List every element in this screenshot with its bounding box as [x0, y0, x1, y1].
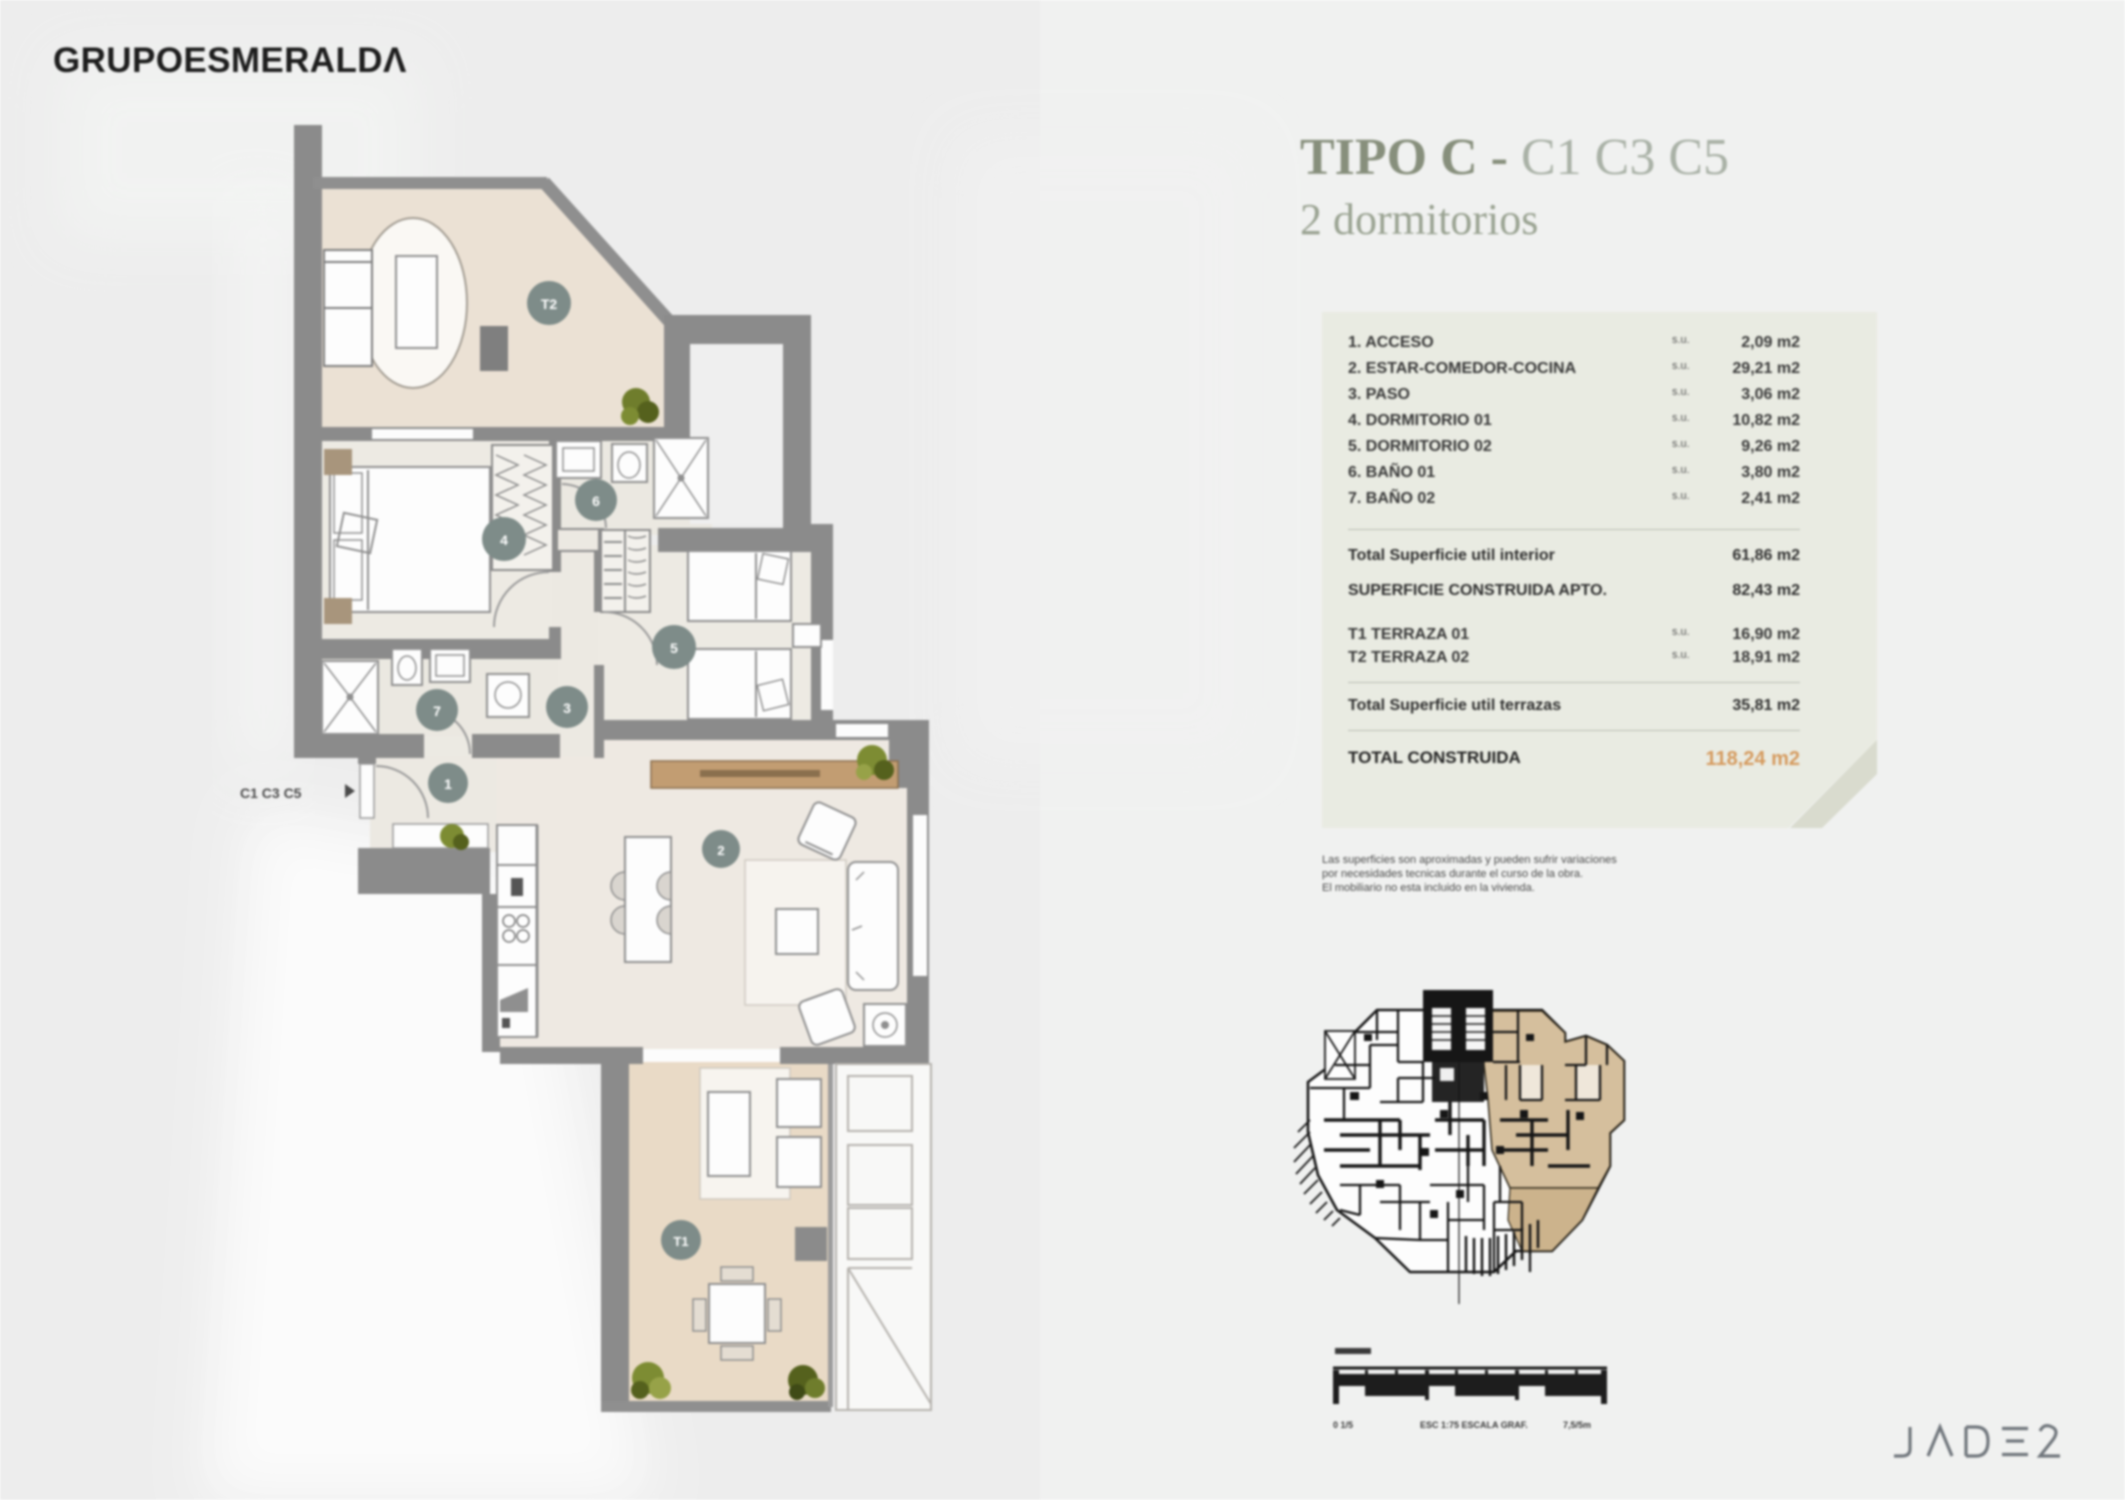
- svg-text:C1 C3 C5: C1 C3 C5: [240, 785, 302, 801]
- svg-text:T2: T2: [541, 296, 558, 312]
- svg-text:7: 7: [433, 703, 441, 719]
- svg-text:3: 3: [563, 700, 571, 716]
- svg-text:5: 5: [670, 640, 678, 656]
- svg-text:T1: T1: [673, 1234, 688, 1249]
- svg-text:6: 6: [592, 493, 600, 509]
- svg-text:2: 2: [717, 843, 724, 858]
- svg-text:0 1/5: 0 1/5: [1333, 1420, 1353, 1430]
- svg-text:1: 1: [444, 776, 452, 792]
- svg-text:4: 4: [500, 532, 508, 548]
- svg-text:7,5/5m: 7,5/5m: [1563, 1420, 1591, 1430]
- svg-text:ESC 1:75 ESCALA GRAF.: ESC 1:75 ESCALA GRAF.: [1420, 1420, 1528, 1430]
